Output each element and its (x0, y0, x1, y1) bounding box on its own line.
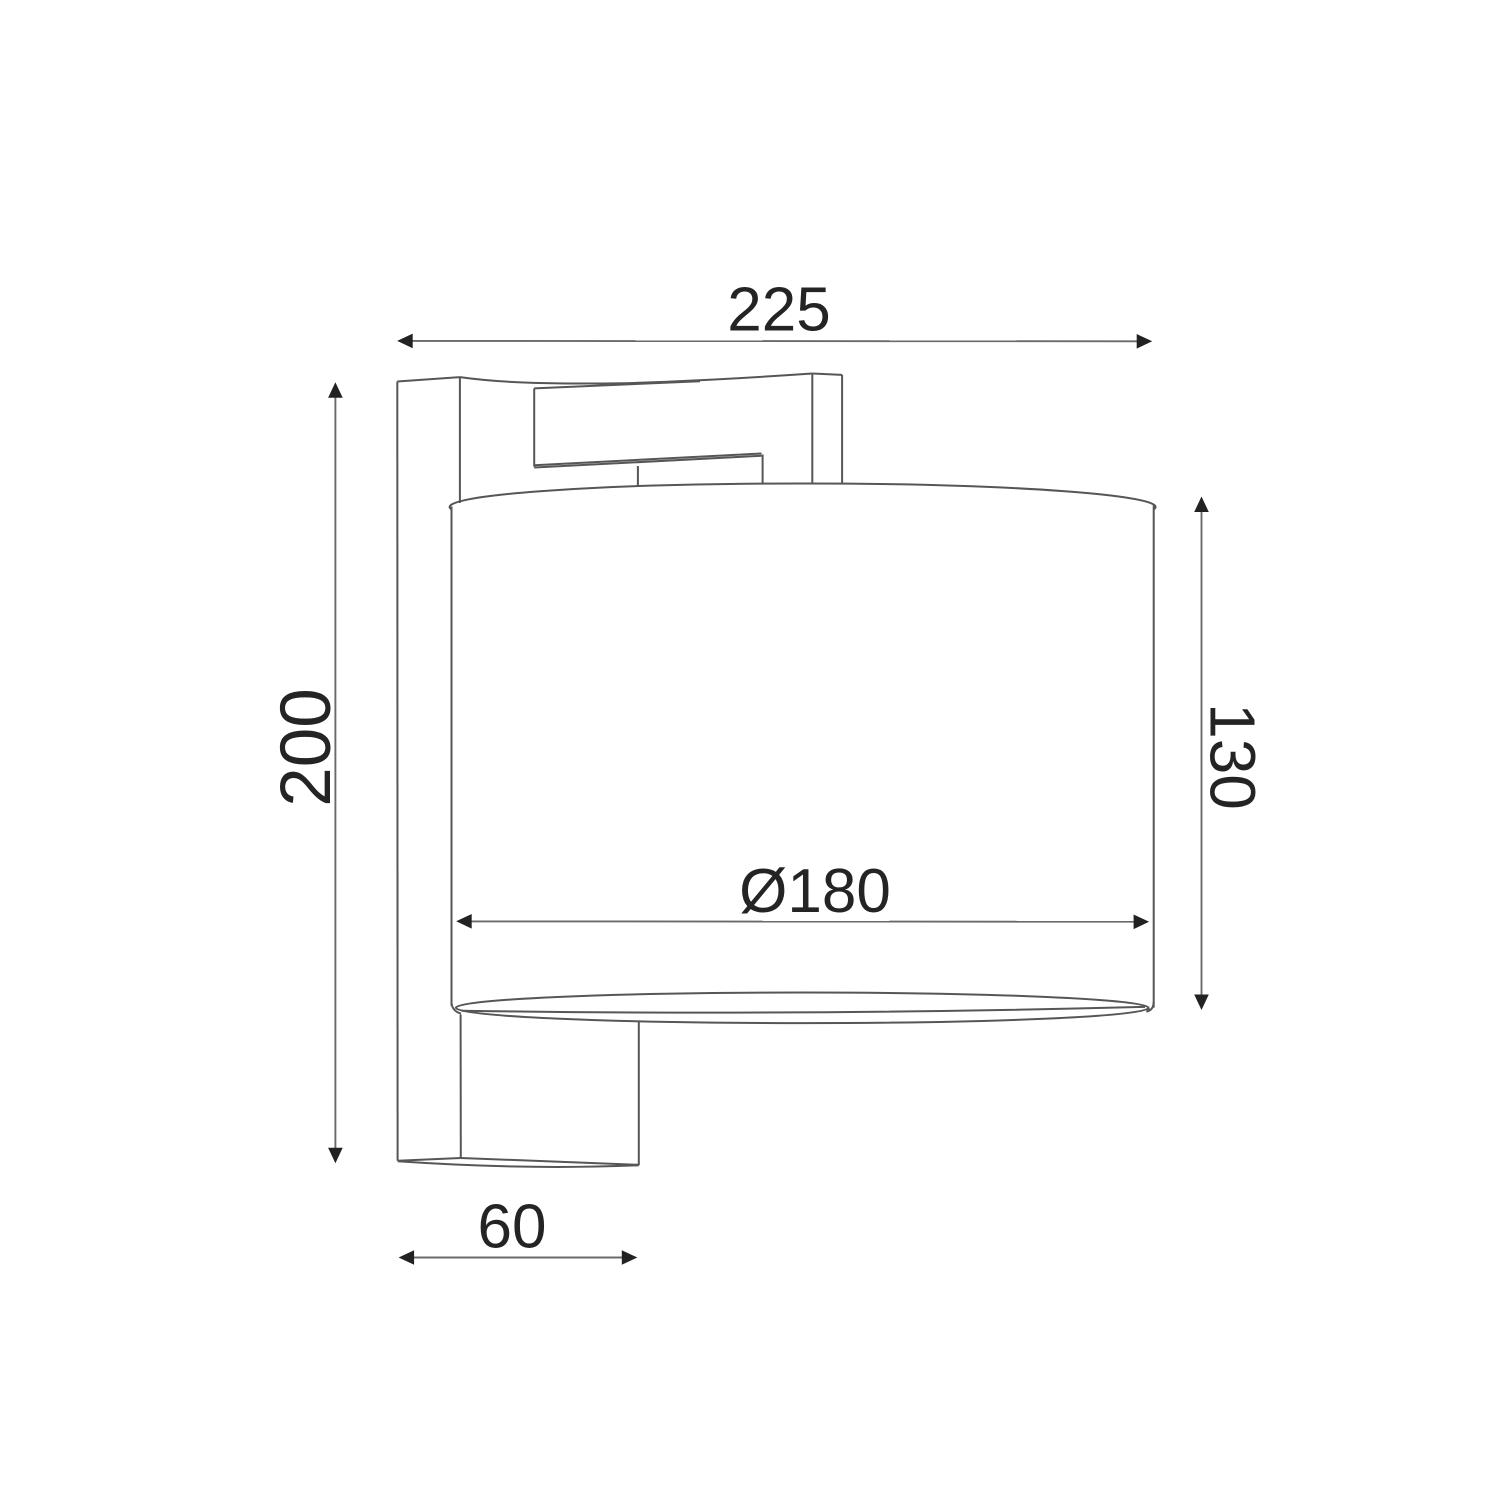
svg-text:Ø180: Ø180 (739, 857, 891, 926)
svg-text:130: 130 (1197, 703, 1269, 810)
svg-text:200: 200 (267, 688, 346, 806)
svg-text:60: 60 (478, 1193, 547, 1262)
svg-text:225: 225 (727, 276, 830, 345)
